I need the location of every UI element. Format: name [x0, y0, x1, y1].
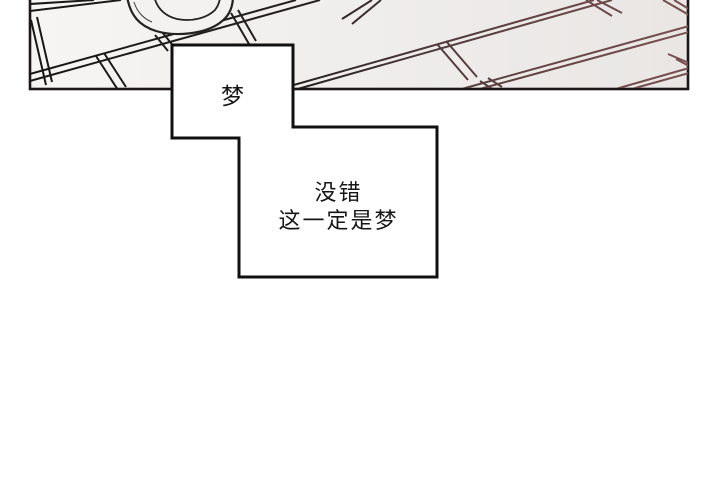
caption-box-shape: [172, 45, 437, 277]
caption-text-dream: 梦: [174, 84, 292, 108]
comic-page: 梦 没错 这一定是梦: [0, 0, 720, 500]
caption-line-1: 没错: [240, 179, 437, 207]
caption-text-block: 没错 这一定是梦: [240, 179, 437, 235]
caption-line-2: 这一定是梦: [240, 207, 437, 235]
caption-box-outline: [158, 33, 452, 283]
